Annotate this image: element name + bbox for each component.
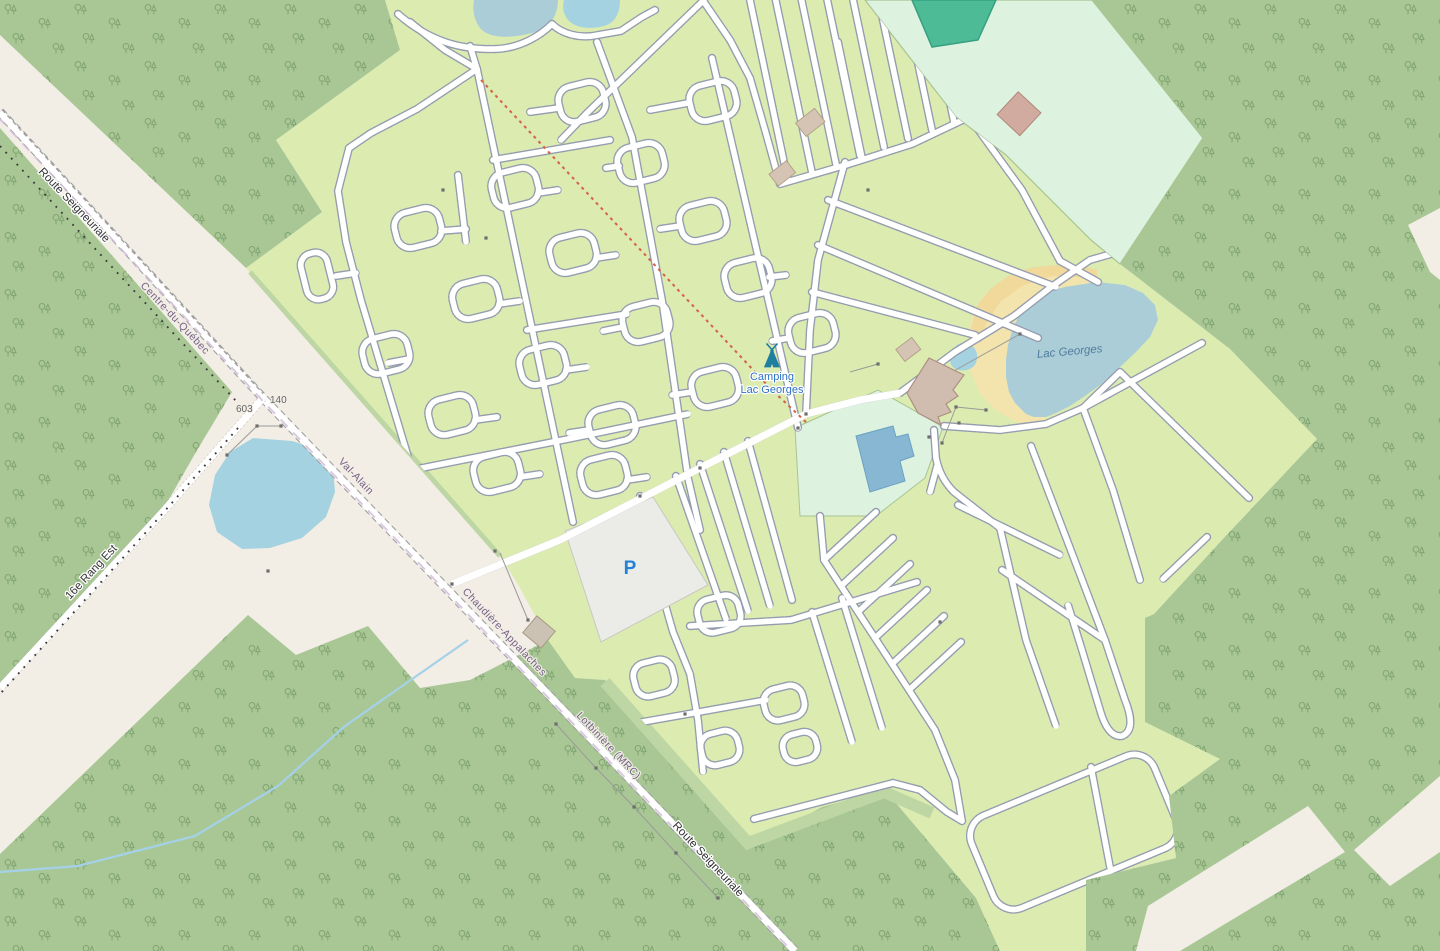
svg-text:603: 603 xyxy=(236,404,253,415)
svg-text:P: P xyxy=(624,558,637,579)
svg-text:Lac Georges: Lac Georges xyxy=(741,384,804,396)
svg-text:Camping: Camping xyxy=(750,371,794,383)
svg-text:140: 140 xyxy=(270,395,287,406)
